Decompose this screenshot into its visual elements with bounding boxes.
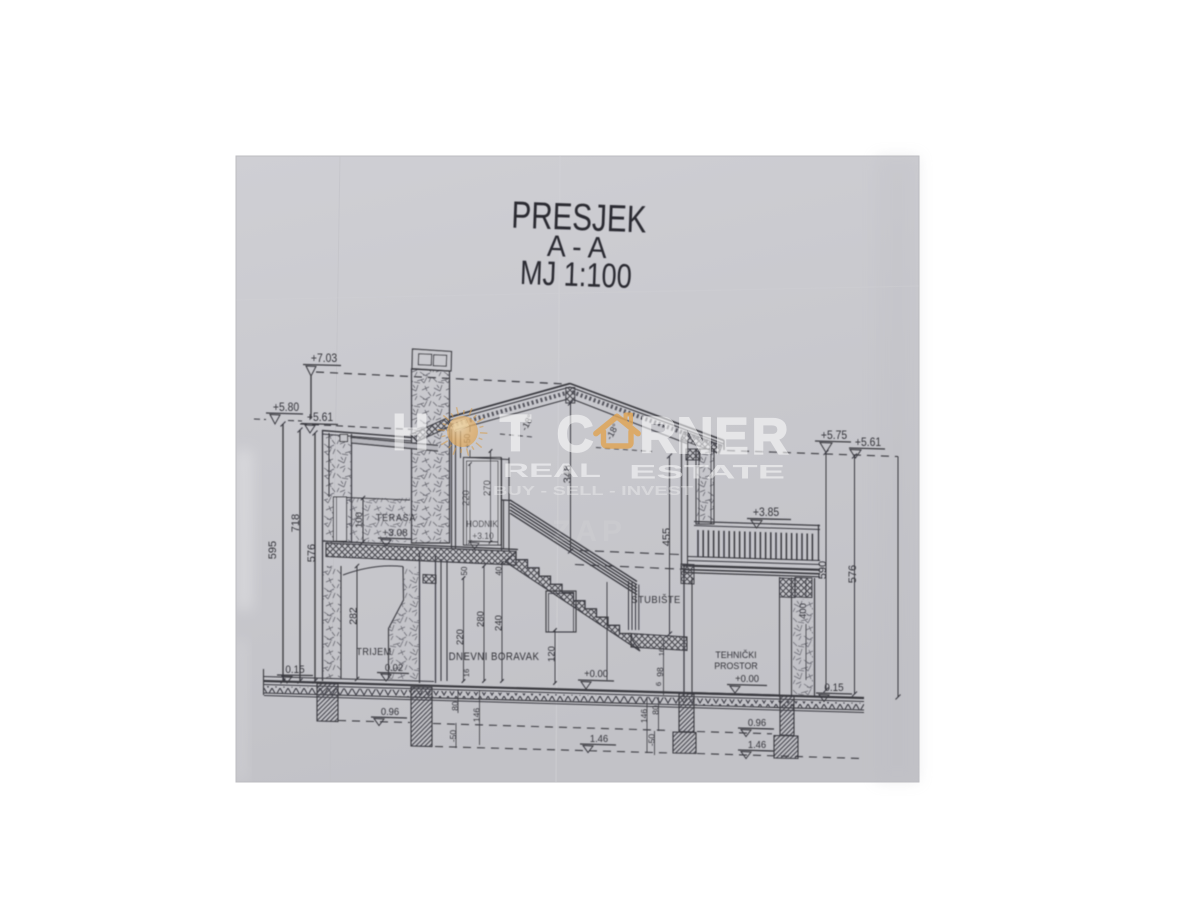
svg-text:6: 6 (654, 682, 663, 686)
svg-text:E: E (714, 408, 748, 465)
svg-text:HODNIK: HODNIK (466, 519, 498, 530)
svg-text:16: 16 (462, 669, 471, 677)
svg-text:C: C (557, 406, 594, 463)
svg-text:T: T (500, 405, 531, 462)
svg-text:+3.85: +3.85 (753, 507, 779, 520)
svg-text:+3.10: +3.10 (472, 531, 494, 542)
svg-text:R: R (640, 407, 677, 464)
svg-text:280: 280 (476, 611, 487, 627)
svg-text:146: 146 (472, 708, 482, 722)
svg-text:TEHNIČKI: TEHNIČKI (715, 650, 756, 660)
svg-text:+0.00: +0.00 (735, 674, 759, 686)
svg-text:H: H (392, 404, 429, 461)
svg-text:120: 120 (547, 646, 558, 662)
svg-text:+5.75: +5.75 (821, 430, 847, 443)
svg-text:R: R (752, 408, 789, 465)
svg-text:40: 40 (495, 566, 504, 575)
svg-text:595: 595 (267, 541, 279, 559)
svg-text:+5.61: +5.61 (307, 412, 333, 425)
svg-text:220: 220 (455, 629, 466, 645)
svg-text:+5.61: +5.61 (855, 437, 881, 450)
svg-text:PROSTOR: PROSTOR (714, 661, 758, 671)
svg-text:240: 240 (494, 615, 505, 631)
svg-text:576: 576 (306, 544, 318, 562)
svg-text:270: 270 (482, 480, 493, 496)
svg-text:MJ 1:100: MJ 1:100 (519, 253, 632, 296)
svg-text:400: 400 (798, 603, 809, 619)
svg-text:1.46: 1.46 (590, 734, 609, 746)
svg-text:220: 220 (461, 490, 472, 506)
svg-text:-50: -50 (647, 734, 657, 747)
svg-text:146: 146 (639, 709, 649, 723)
svg-text:455: 455 (661, 528, 673, 546)
svg-text:+0.00: +0.00 (584, 669, 608, 681)
svg-text:282: 282 (348, 607, 360, 625)
svg-text:STUBIŠTE: STUBIŠTE (631, 595, 681, 606)
svg-text:1.46: 1.46 (748, 740, 767, 752)
svg-text:REAL: REAL (503, 460, 601, 482)
svg-text:80: 80 (651, 705, 661, 715)
svg-text:ZAP: ZAP (552, 515, 627, 548)
svg-text:0.96: 0.96 (748, 718, 767, 730)
svg-text:0.15: 0.15 (824, 683, 843, 695)
svg-text:0.15: 0.15 (285, 665, 304, 677)
svg-text:+5.80: +5.80 (273, 402, 299, 415)
svg-text:BUY - SELL - INVEST: BUY - SELL - INVEST (493, 483, 693, 498)
svg-text:50: 50 (460, 566, 469, 575)
svg-text:+7.03: +7.03 (311, 353, 337, 366)
svg-text:TRIJEM: TRIJEM (356, 646, 391, 658)
svg-text:ESTATE: ESTATE (629, 462, 785, 484)
svg-text:DNEVNI BORAVAK: DNEVNI BORAVAK (449, 652, 540, 664)
svg-text:718: 718 (290, 514, 302, 532)
svg-text:0.96: 0.96 (381, 707, 400, 719)
svg-text:N: N (677, 407, 714, 464)
svg-text:576: 576 (847, 565, 859, 583)
svg-text:-50: -50 (448, 730, 458, 743)
svg-text:80: 80 (450, 701, 460, 711)
svg-text:100: 100 (354, 512, 365, 528)
svg-text:16: 16 (657, 648, 666, 656)
